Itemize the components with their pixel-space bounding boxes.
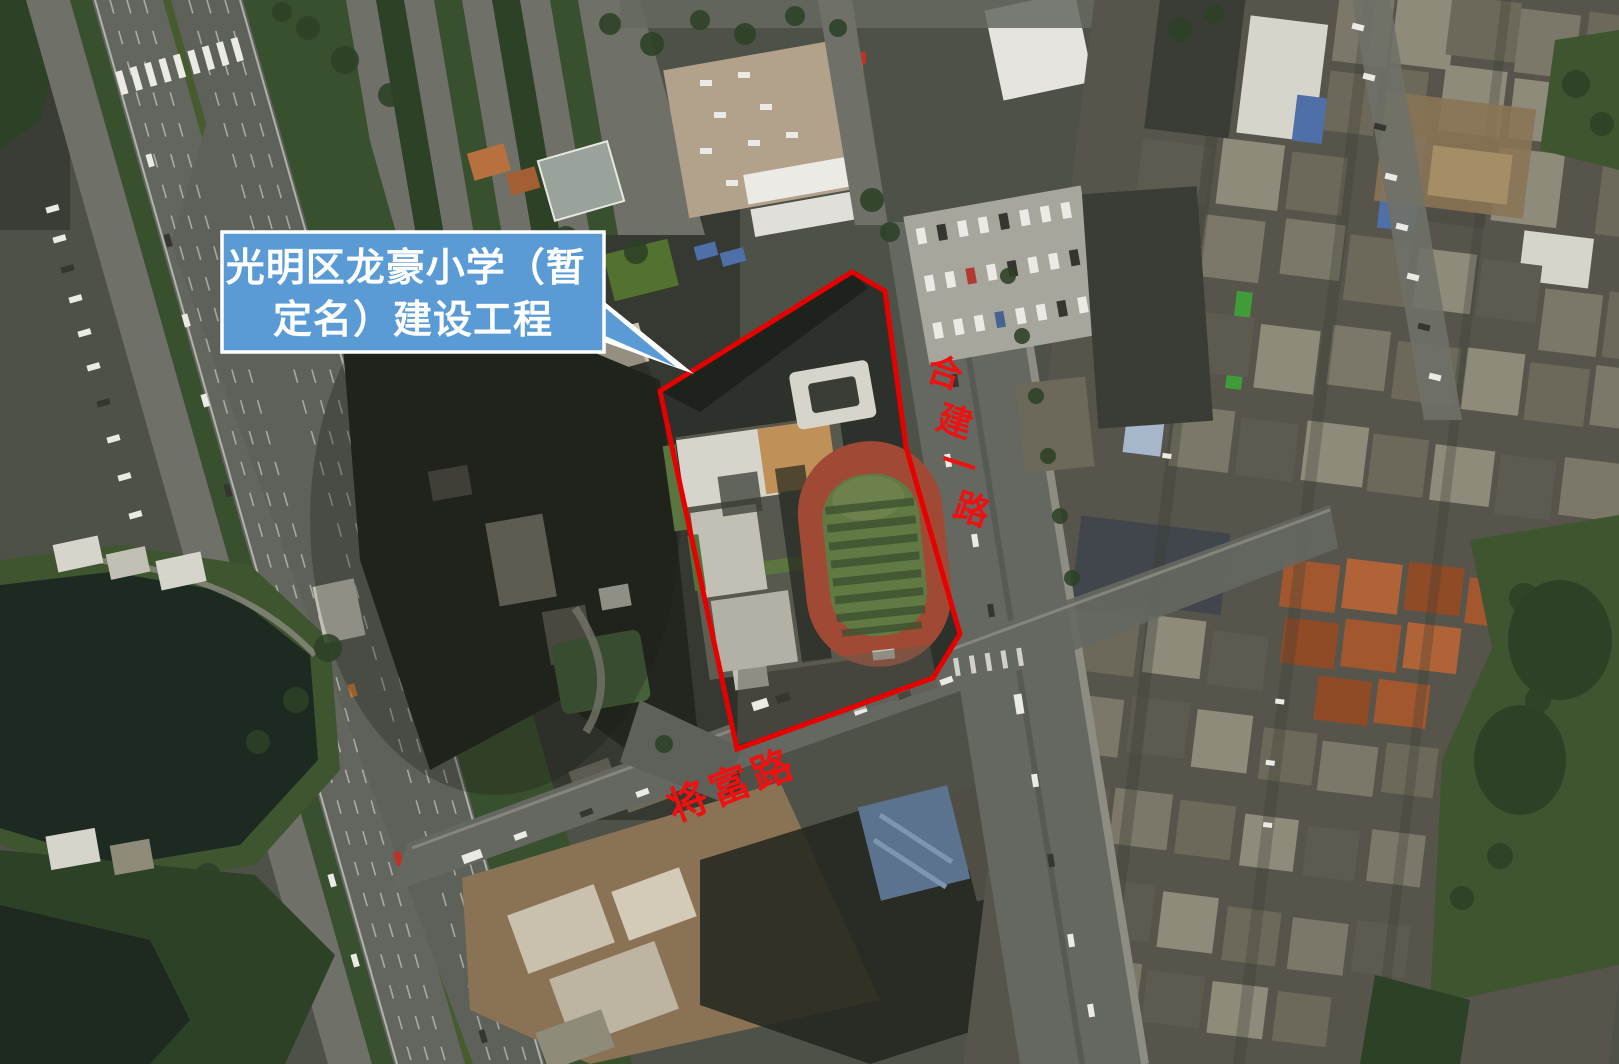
satellite-basemap: 合 建 一 路 将富路 光明区龙豪小学（暂 定名）建设工程 (0, 0, 1619, 1064)
callout-text-line1: 光明区龙豪小学（暂 (226, 246, 586, 291)
satellite-map-screenshot: 合 建 一 路 将富路 光明区龙豪小学（暂 定名）建设工程 (0, 0, 1619, 1064)
callout-text-line2: 定名）建设工程 (273, 298, 553, 343)
